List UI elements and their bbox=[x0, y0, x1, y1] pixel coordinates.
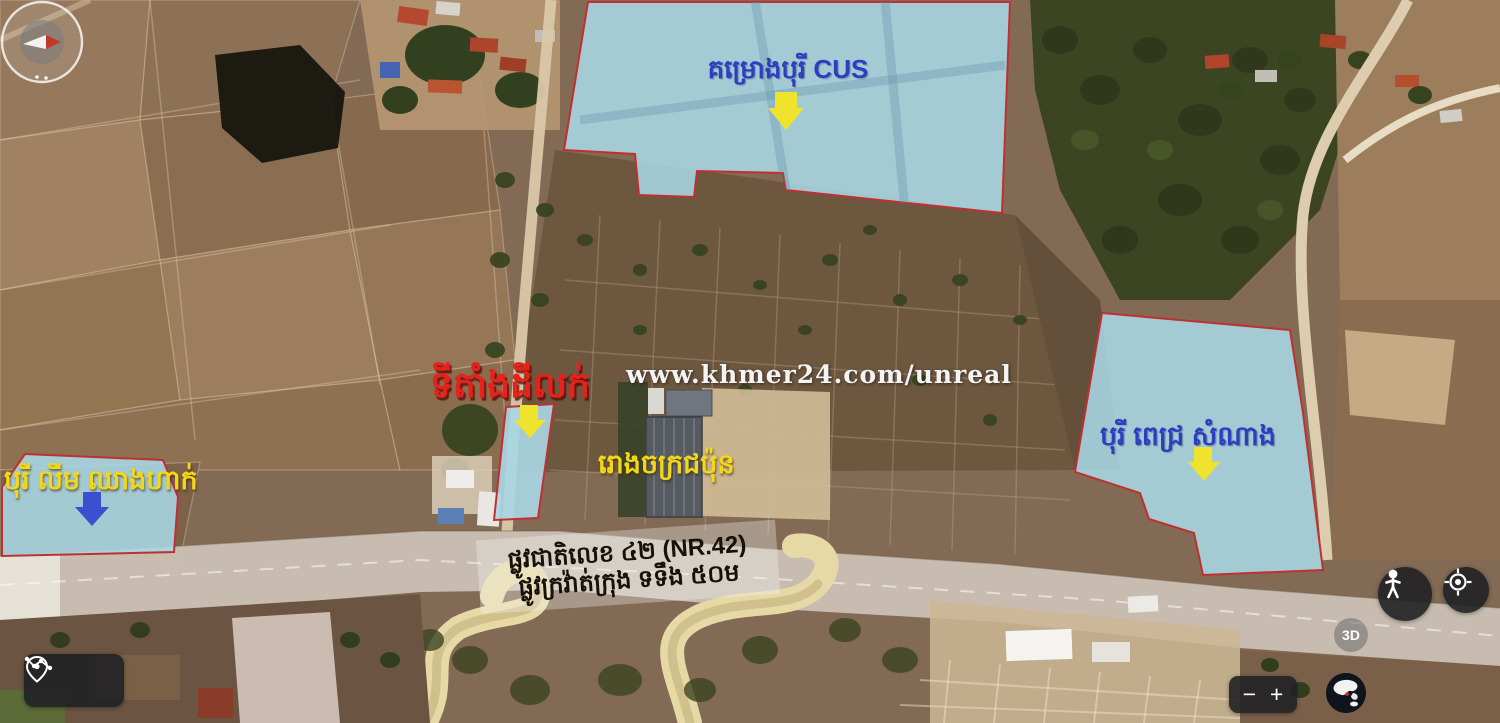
compass-control[interactable] bbox=[0, 0, 84, 84]
label-japanese-factory: រោងចក្រជប៉ុន bbox=[598, 450, 735, 478]
pegman-button[interactable] bbox=[1378, 567, 1432, 621]
my-location-button[interactable] bbox=[1443, 567, 1489, 613]
zoom-out-button[interactable]: − bbox=[1243, 683, 1256, 706]
pegman-icon bbox=[1378, 567, 1408, 601]
label-borey-pich-samnang: បុរី ពេជ្រ សំណាង bbox=[1100, 422, 1276, 450]
globe-button[interactable] bbox=[1326, 673, 1366, 713]
label-land-for-sale: ទីតាំងដីលក់ bbox=[430, 366, 590, 404]
map-toolbar bbox=[24, 654, 124, 707]
measure-path-icon bbox=[24, 654, 54, 672]
globe-icon bbox=[1326, 673, 1366, 713]
label-borey-lim-chheang-hak: បុរី លីម ឈាងហាក់ bbox=[4, 466, 198, 494]
map-screenshot: គម្រោងបុរី CUS ទីតាំងដីលក់ រោងចក្រជប៉ុន … bbox=[0, 0, 1500, 723]
my-location-icon bbox=[1443, 567, 1473, 597]
zoom-control: − + bbox=[1229, 676, 1297, 713]
3d-button-label: 3D bbox=[1342, 627, 1360, 643]
3d-view-button[interactable]: 3D bbox=[1334, 618, 1368, 652]
zoom-in-button[interactable]: + bbox=[1270, 683, 1283, 706]
label-project-cus: គម្រោងបុរី CUS bbox=[658, 56, 918, 83]
watermark: www.khmer24.com/unreal bbox=[626, 360, 1012, 389]
